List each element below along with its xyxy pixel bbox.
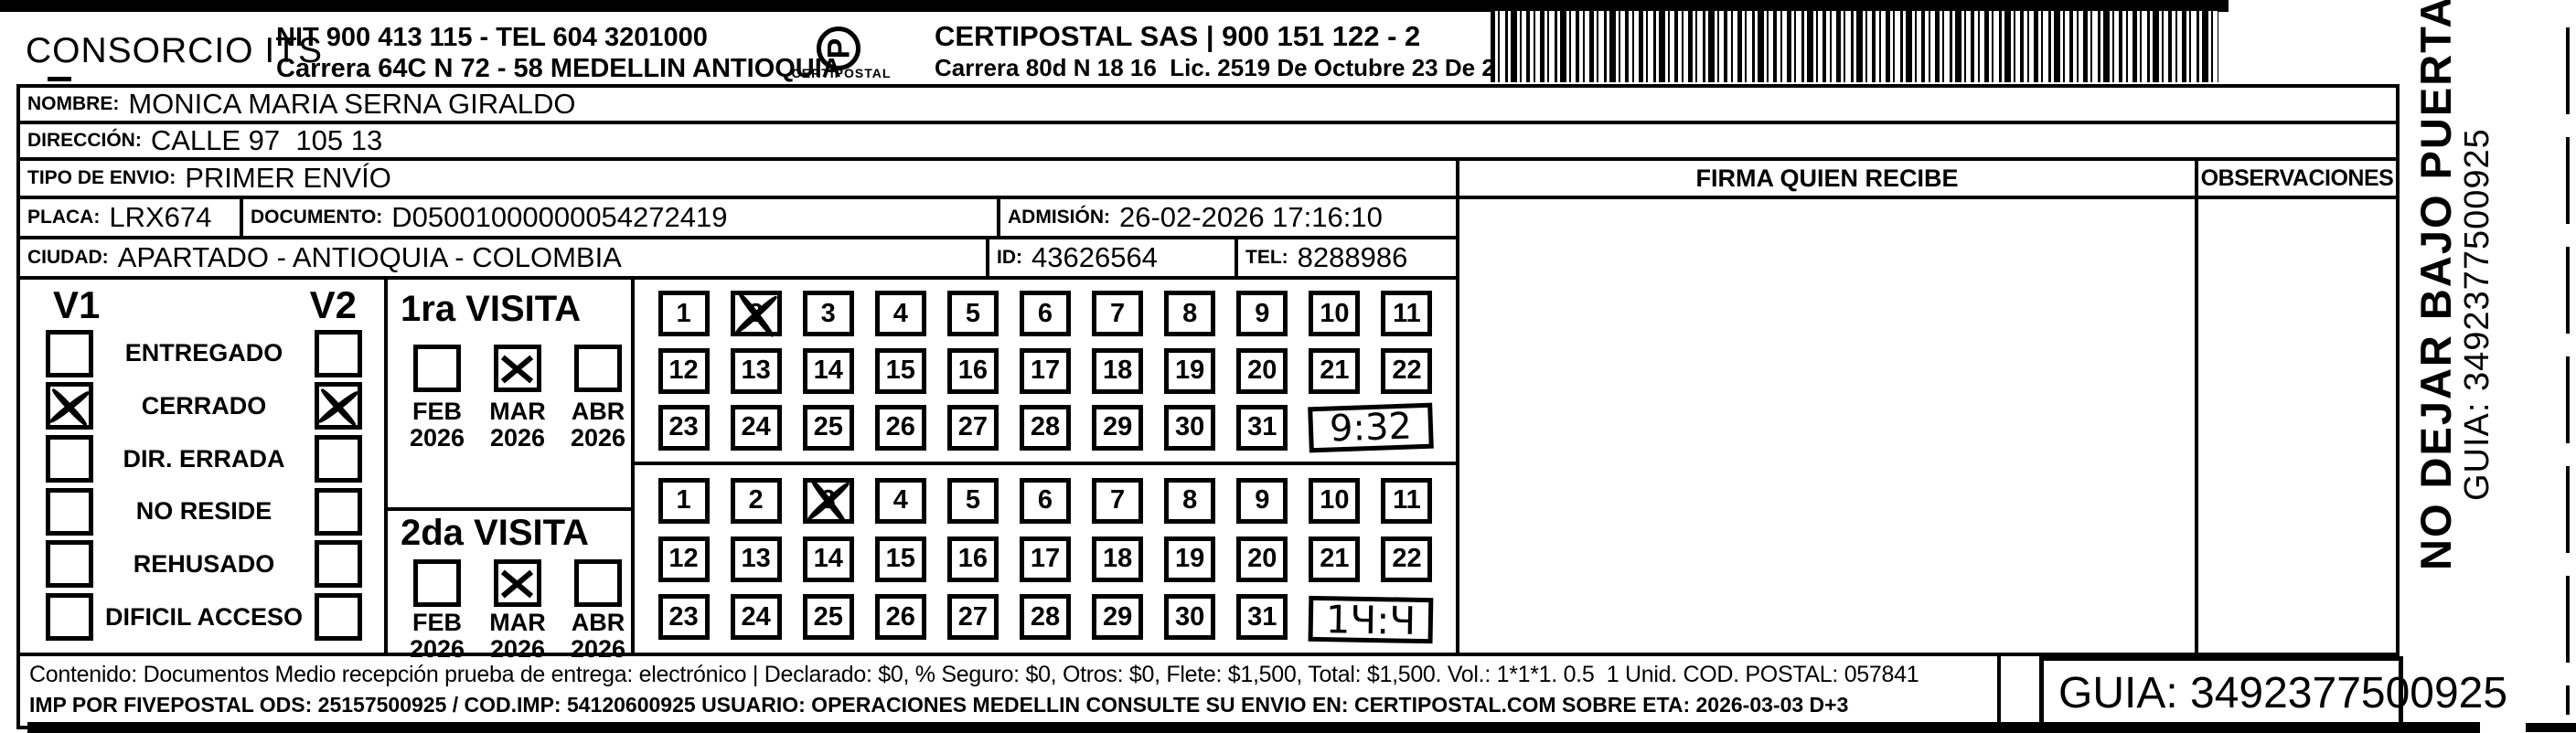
barcode-icon bbox=[1491, 11, 2218, 82]
month-label: MAR bbox=[489, 398, 546, 425]
day-cell-16: 16 bbox=[947, 348, 999, 394]
admision-value: 26-02-2026 17:16:10 bbox=[1119, 201, 1383, 234]
month-option-feb: FEB2026 bbox=[412, 345, 463, 451]
day-cell-17: 17 bbox=[1020, 348, 1071, 394]
handwritten-time: 9:32 bbox=[1308, 402, 1434, 452]
day-cell-26: 26 bbox=[875, 405, 926, 451]
checkbox-v2-cerrado-checked bbox=[315, 382, 362, 430]
month-label: ABR bbox=[572, 398, 625, 425]
day-row: 1234567891011 bbox=[635, 478, 1456, 524]
status-row-dificil-acceso: DIFICIL ACCESO bbox=[46, 593, 362, 641]
certipostal-logo-icon: P bbox=[817, 27, 860, 70]
checkbox-v1-cerrado-checked bbox=[46, 382, 93, 430]
day-cell-12: 12 bbox=[658, 348, 710, 394]
day-cell-8: 8 bbox=[1164, 478, 1215, 524]
day-cell-8: 8 bbox=[1164, 291, 1215, 336]
logo-p-glyph: P bbox=[823, 38, 854, 59]
day-cell-6: 6 bbox=[1020, 291, 1071, 336]
day-cell-30: 30 bbox=[1164, 594, 1215, 640]
tipo-envio-value: PRIMER ENVÍO bbox=[185, 162, 391, 195]
nombre-label: NOMBRE: bbox=[27, 93, 119, 115]
status-row-no-reside: NO RESIDE bbox=[46, 488, 362, 536]
segunda-visita-panel: 2da VISITA FEB2026MAR2026ABR2026 bbox=[384, 507, 635, 656]
month-label: FEB bbox=[412, 398, 462, 425]
carrier-info-block: CERTIPOSTAL SAS | 900 151 122 - 2 Carrer… bbox=[935, 20, 1534, 82]
documento-value: D05001000000054272419 bbox=[391, 201, 727, 234]
day-cell-29: 29 bbox=[1092, 594, 1143, 640]
shipment-imp-line: IMP POR FIVEPOSTAL ODS: 25157500925 / CO… bbox=[29, 693, 1988, 717]
segunda-visita-months: FEB2026MAR2026ABR2026 bbox=[388, 554, 631, 663]
day-cell-9: 9 bbox=[1236, 478, 1288, 524]
segunda-visita-day-grid: 1234567891011121314151617181920212223242… bbox=[631, 462, 1459, 656]
checkbox-visit1-feb bbox=[413, 345, 461, 392]
observaciones-header: OBSERVACIONES bbox=[2195, 157, 2400, 199]
status-label: REHUSADO bbox=[93, 550, 315, 579]
placa-label: PLACA: bbox=[27, 207, 100, 228]
day-cell-13: 13 bbox=[731, 348, 782, 394]
status-rows: ENTREGADOCERRADODIR. ERRADANO RESIDEREHU… bbox=[20, 327, 384, 653]
day-cell-21: 21 bbox=[1309, 348, 1360, 394]
checkbox-v2-dir-errada bbox=[315, 435, 362, 483]
day-row: 1234567891011 bbox=[635, 291, 1456, 336]
company-info-block: NIT 900 413 115 - TEL 604 3201000 Carrer… bbox=[276, 22, 841, 84]
day-row: 2324252627282930319:32 bbox=[635, 405, 1456, 451]
status-row-entregado: ENTREGADO bbox=[46, 330, 362, 377]
status-label: DIFICIL ACCESO bbox=[93, 603, 315, 632]
month-option-feb: FEB2026 bbox=[412, 559, 463, 663]
carrier-address: Carrera 80d N 18 16 Lic. 2519 De Octubre… bbox=[935, 53, 1534, 82]
checkbox-visit1-abr bbox=[574, 345, 622, 392]
day-cell-5: 5 bbox=[947, 291, 999, 336]
day-cell-5: 5 bbox=[947, 478, 999, 524]
primera-visita-title: 1ra VISITA bbox=[388, 280, 631, 330]
day-cell-23: 23 bbox=[658, 405, 710, 451]
day-cell-13: 13 bbox=[731, 536, 782, 582]
day-cell-25: 25 bbox=[803, 594, 854, 640]
primera-visita-months: FEB2026MAR2026ABR2026 bbox=[388, 330, 631, 451]
company-nit-tel: NIT 900 413 115 - TEL 604 3201000 bbox=[276, 22, 841, 53]
tel-label: TEL: bbox=[1245, 247, 1288, 269]
month-option-mar: MAR2026 bbox=[492, 345, 543, 451]
month-label: FEB bbox=[412, 610, 462, 636]
month-option-abr: ABR2026 bbox=[572, 559, 624, 663]
day-cell-11: 11 bbox=[1381, 478, 1432, 524]
day-cell-3-marked: 3 bbox=[803, 478, 854, 524]
ciudad-label: CIUDAD: bbox=[27, 247, 109, 269]
handwritten-time: 1Ч:Ч bbox=[1308, 596, 1433, 643]
month-option-abr: ABR2026 bbox=[572, 345, 624, 451]
day-cell-22: 22 bbox=[1381, 536, 1432, 582]
placa-value: LRX674 bbox=[109, 201, 211, 234]
day-cell-22: 22 bbox=[1381, 348, 1432, 394]
checkbox-v1-dir-errada bbox=[46, 435, 93, 483]
day-cell-27: 27 bbox=[947, 594, 999, 640]
day-cell-19: 19 bbox=[1164, 348, 1215, 394]
company-address: Carrera 64C N 72 - 58 MEDELLIN ANTIOQUIA bbox=[276, 53, 841, 84]
id-label: ID: bbox=[997, 247, 1022, 269]
day-row: 1213141516171819202122 bbox=[635, 536, 1456, 582]
month-label: ABR bbox=[572, 610, 625, 636]
day-cell-24: 24 bbox=[731, 405, 782, 451]
checkbox-v1-rehusado bbox=[46, 540, 93, 588]
day-cell-31: 31 bbox=[1236, 594, 1288, 640]
checkbox-v1-no-reside bbox=[46, 488, 93, 536]
day-cell-3: 3 bbox=[803, 291, 854, 336]
day-cell-20: 20 bbox=[1236, 348, 1288, 394]
day-cell-12: 12 bbox=[658, 536, 710, 582]
company-underline bbox=[48, 77, 71, 81]
bottom-border-bar-segment bbox=[2526, 723, 2576, 732]
visit-column-headers: V1 V2 bbox=[20, 280, 384, 327]
checkbox-visit2-feb bbox=[413, 559, 461, 607]
day-cell-11: 11 bbox=[1381, 291, 1432, 336]
month-option-mar: MAR2026 bbox=[492, 559, 543, 663]
checkbox-visit2-mar-checked bbox=[494, 559, 541, 607]
month-year: 2026 bbox=[490, 425, 545, 451]
day-cell-25: 25 bbox=[803, 405, 854, 451]
side-guia-number: GUIA: 3492377500925 bbox=[2458, 154, 2497, 501]
day-cell-23: 23 bbox=[658, 594, 710, 640]
admision-label: ADMISIÓN: bbox=[1008, 207, 1110, 228]
v2-column-header: V2 bbox=[310, 283, 357, 327]
checkbox-v2-entregado bbox=[315, 330, 362, 377]
field-direccion: DIRECCIÓN: CALLE 97 105 13 bbox=[16, 121, 2400, 161]
status-label: DIR. ERRADA bbox=[93, 445, 315, 473]
day-cell-18: 18 bbox=[1092, 536, 1143, 582]
firma-quien-recibe-header: FIRMA QUIEN RECIBE bbox=[1456, 157, 2198, 199]
day-cell-7: 7 bbox=[1092, 291, 1143, 336]
day-row: 1213141516171819202122 bbox=[635, 348, 1456, 394]
day-cell-10: 10 bbox=[1309, 478, 1360, 524]
day-cell-16: 16 bbox=[947, 536, 999, 582]
nombre-value: MONICA MARIA SERNA GIRALDO bbox=[128, 88, 575, 121]
segunda-visita-title: 2da VISITA bbox=[388, 511, 631, 554]
field-id: ID: 43626564 bbox=[986, 236, 1238, 280]
field-tipo-envio: TIPO DE ENVIO: PRIMER ENVÍO bbox=[16, 157, 1459, 199]
status-label: ENTREGADO bbox=[93, 339, 315, 367]
observaciones-header-text: OBSERVACIONES bbox=[2201, 165, 2394, 192]
primera-visita-day-grid: 1234567891011121314151617181920212223242… bbox=[631, 276, 1459, 465]
checkbox-visit2-abr bbox=[574, 559, 622, 607]
checkbox-v2-no-reside bbox=[315, 488, 362, 536]
v1-column-header: V1 bbox=[53, 283, 100, 327]
field-ciudad: CIUDAD: APARTADO - ANTIOQUIA - COLOMBIA bbox=[16, 236, 989, 280]
day-cell-28: 28 bbox=[1020, 594, 1071, 640]
firma-header-text: FIRMA QUIEN RECIBE bbox=[1695, 165, 1958, 193]
day-cell-28: 28 bbox=[1020, 405, 1071, 451]
guia-number-box: GUIA: 3492377500925 bbox=[2039, 656, 2403, 729]
day-cell-6: 6 bbox=[1020, 478, 1071, 524]
day-cell-21: 21 bbox=[1309, 536, 1360, 582]
day-cell-31: 31 bbox=[1236, 405, 1288, 451]
ciudad-value: APARTADO - ANTIOQUIA - COLOMBIA bbox=[118, 241, 622, 274]
month-year: 2026 bbox=[410, 425, 465, 451]
checkbox-v2-dificil-acceso bbox=[315, 593, 362, 641]
direccion-value: CALLE 97 105 13 bbox=[151, 124, 382, 157]
observaciones-area bbox=[2195, 196, 2400, 656]
day-cell-19: 19 bbox=[1164, 536, 1215, 582]
checkbox-v2-rehusado bbox=[315, 540, 362, 588]
field-documento: DOCUMENTO: D05001000000054272419 bbox=[240, 196, 1000, 239]
checkbox-v1-dificil-acceso bbox=[46, 593, 93, 641]
field-nombre: NOMBRE: MONICA MARIA SERNA GIRALDO bbox=[16, 84, 2400, 124]
delivery-status-panel: V1 V2 ENTREGADOCERRADODIR. ERRADANO RESI… bbox=[16, 276, 388, 656]
bottom-border-bar bbox=[27, 722, 2480, 733]
day-cell-18: 18 bbox=[1092, 348, 1143, 394]
id-value: 43626564 bbox=[1031, 241, 1158, 274]
shipment-content-line: Contenido: Documentos Medio recepción pr… bbox=[29, 662, 1988, 688]
firma-signature-area bbox=[1456, 196, 2198, 656]
status-label: CERRADO bbox=[93, 392, 315, 420]
day-cell-2-marked: 2 bbox=[731, 291, 782, 336]
day-cell-14: 14 bbox=[803, 348, 854, 394]
status-row-cerrado: CERRADO bbox=[46, 382, 362, 430]
day-cell-26: 26 bbox=[875, 594, 926, 640]
day-cell-17: 17 bbox=[1020, 536, 1071, 582]
day-row: 2324252627282930311Ч:Ч bbox=[635, 594, 1456, 640]
day-cell-30: 30 bbox=[1164, 405, 1215, 451]
waybill-document: CONSORCIO ITS NIT 900 413 115 - TEL 604 … bbox=[0, 0, 2576, 733]
day-cell-4: 4 bbox=[875, 478, 926, 524]
checkbox-visit1-mar-checked bbox=[494, 345, 541, 392]
status-row-dir-errada: DIR. ERRADA bbox=[46, 435, 362, 483]
day-cell-20: 20 bbox=[1236, 536, 1288, 582]
day-cell-1: 1 bbox=[658, 478, 710, 524]
tipo-envio-label: TIPO DE ENVIO: bbox=[27, 167, 176, 189]
status-row-rehusado: REHUSADO bbox=[46, 540, 362, 588]
day-cell-29: 29 bbox=[1092, 405, 1143, 451]
month-label: MAR bbox=[489, 610, 546, 636]
day-cell-4: 4 bbox=[875, 291, 926, 336]
primera-visita-panel: 1ra VISITA FEB2026MAR2026ABR2026 bbox=[384, 276, 635, 511]
field-placa: PLACA: LRX674 bbox=[16, 196, 243, 239]
day-cell-1: 1 bbox=[658, 291, 710, 336]
direccion-label: DIRECCIÓN: bbox=[27, 130, 142, 152]
shipment-info-box: Contenido: Documentos Medio recepción pr… bbox=[16, 653, 2001, 729]
month-year: 2026 bbox=[571, 425, 625, 451]
scan-edge-artifact bbox=[2566, 27, 2570, 715]
logo-caption: CERTIPOSTAL bbox=[782, 66, 901, 80]
tel-value: 8288986 bbox=[1298, 241, 1408, 274]
field-admision: ADMISIÓN: 26-02-2026 17:16:10 bbox=[997, 196, 1459, 239]
day-cell-15: 15 bbox=[875, 348, 926, 394]
carrier-name: CERTIPOSTAL SAS | 900 151 122 - 2 bbox=[935, 20, 1534, 53]
day-cell-9: 9 bbox=[1236, 291, 1288, 336]
checkbox-v1-entregado bbox=[46, 330, 93, 377]
no-dejar-bajo-puerta-note: NO DEJAR BAJO PUERTA bbox=[2410, 108, 2461, 570]
day-cell-27: 27 bbox=[947, 405, 999, 451]
day-cell-24: 24 bbox=[731, 594, 782, 640]
field-tel: TEL: 8288986 bbox=[1235, 236, 1459, 280]
day-cell-15: 15 bbox=[875, 536, 926, 582]
day-cell-7: 7 bbox=[1092, 478, 1143, 524]
day-cell-14: 14 bbox=[803, 536, 854, 582]
documento-label: DOCUMENTO: bbox=[251, 207, 382, 228]
status-label: NO RESIDE bbox=[93, 497, 315, 526]
day-cell-10: 10 bbox=[1309, 291, 1360, 336]
day-cell-2: 2 bbox=[731, 478, 782, 524]
